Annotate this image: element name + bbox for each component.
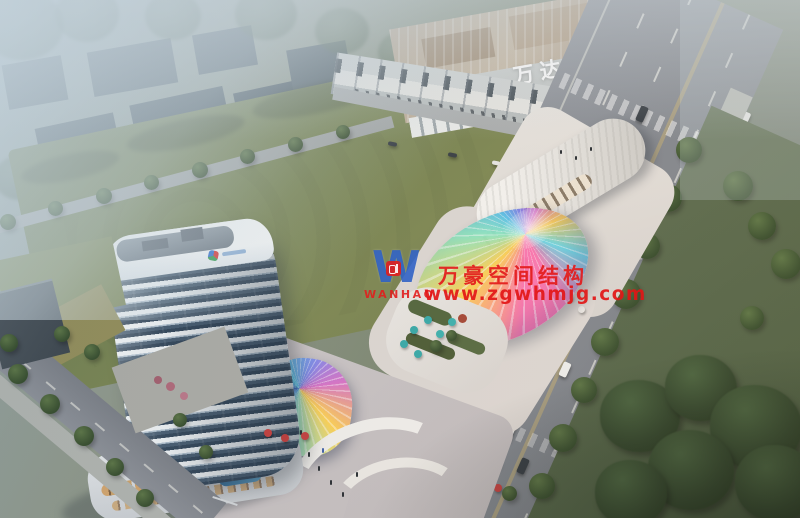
street-tree — [144, 175, 159, 190]
teal-umbrella — [410, 326, 418, 334]
street-tree — [288, 137, 303, 152]
street-tree — [0, 214, 16, 230]
pink-shrub — [180, 392, 188, 400]
street-tree — [502, 486, 517, 501]
street-tree — [199, 445, 213, 459]
pedestrian — [342, 492, 344, 497]
badge-glyph — [396, 264, 398, 273]
street-tree — [0, 334, 18, 352]
verge-tree — [748, 212, 776, 240]
pedestrian — [575, 156, 577, 160]
red-umbrella — [301, 432, 309, 440]
red-umbrella — [264, 429, 272, 437]
hazy-trees — [55, 0, 119, 42]
terrace-tree — [446, 330, 457, 341]
pedestrian — [590, 147, 592, 151]
street-tree — [40, 394, 60, 414]
tower-logo — [207, 250, 219, 262]
lawn-tree — [84, 344, 100, 360]
median-tree — [676, 137, 702, 163]
street-tree — [240, 149, 255, 164]
terrace-tree — [430, 340, 442, 352]
pedestrian — [308, 452, 310, 457]
median-tree — [529, 473, 555, 499]
pink-shrub — [154, 376, 162, 384]
aerial-rendering: 万达广场 — [0, 0, 800, 518]
median-tree — [549, 424, 577, 452]
street-tree — [74, 426, 94, 446]
pedestrian — [330, 480, 332, 485]
badge-glyph — [389, 265, 396, 274]
teal-umbrella — [414, 350, 422, 358]
teal-umbrella — [400, 340, 408, 348]
teal-umbrella — [436, 330, 444, 338]
median-tree — [591, 328, 619, 356]
pedestrian — [318, 466, 320, 471]
wanhao-logo-badge — [386, 261, 401, 276]
pink-shrub — [166, 382, 175, 391]
verge-tree — [740, 306, 764, 330]
distant-building — [2, 55, 69, 110]
street-tree — [48, 201, 63, 216]
street-tree — [336, 125, 350, 139]
park-tree-cluster — [735, 445, 800, 518]
red-umbrella — [281, 434, 289, 442]
pedestrian — [356, 472, 358, 477]
verge-tree — [771, 249, 800, 279]
verge-tree — [723, 171, 753, 201]
pedestrian — [322, 448, 324, 453]
street-tree — [173, 413, 187, 427]
street-tree — [8, 364, 28, 384]
lawn-tree — [54, 326, 70, 342]
teal-umbrella — [448, 318, 456, 326]
street-tree — [96, 188, 112, 204]
tower-logo-text-streak — [222, 249, 246, 256]
watermark-line2: www.zgwhmjg.com — [424, 284, 647, 305]
median-tree — [571, 377, 597, 403]
watermark: W WANHAO 万豪空间结构 www.zgwhmjg.com — [364, 248, 604, 318]
street-tree — [136, 489, 154, 507]
street-tree — [106, 458, 124, 476]
distant-building — [87, 38, 179, 97]
street-tree — [192, 162, 208, 178]
hazy-trees — [315, 8, 369, 54]
tree-shadow — [19, 144, 122, 190]
hazy-trees — [145, 0, 201, 40]
pedestrian — [560, 150, 562, 154]
